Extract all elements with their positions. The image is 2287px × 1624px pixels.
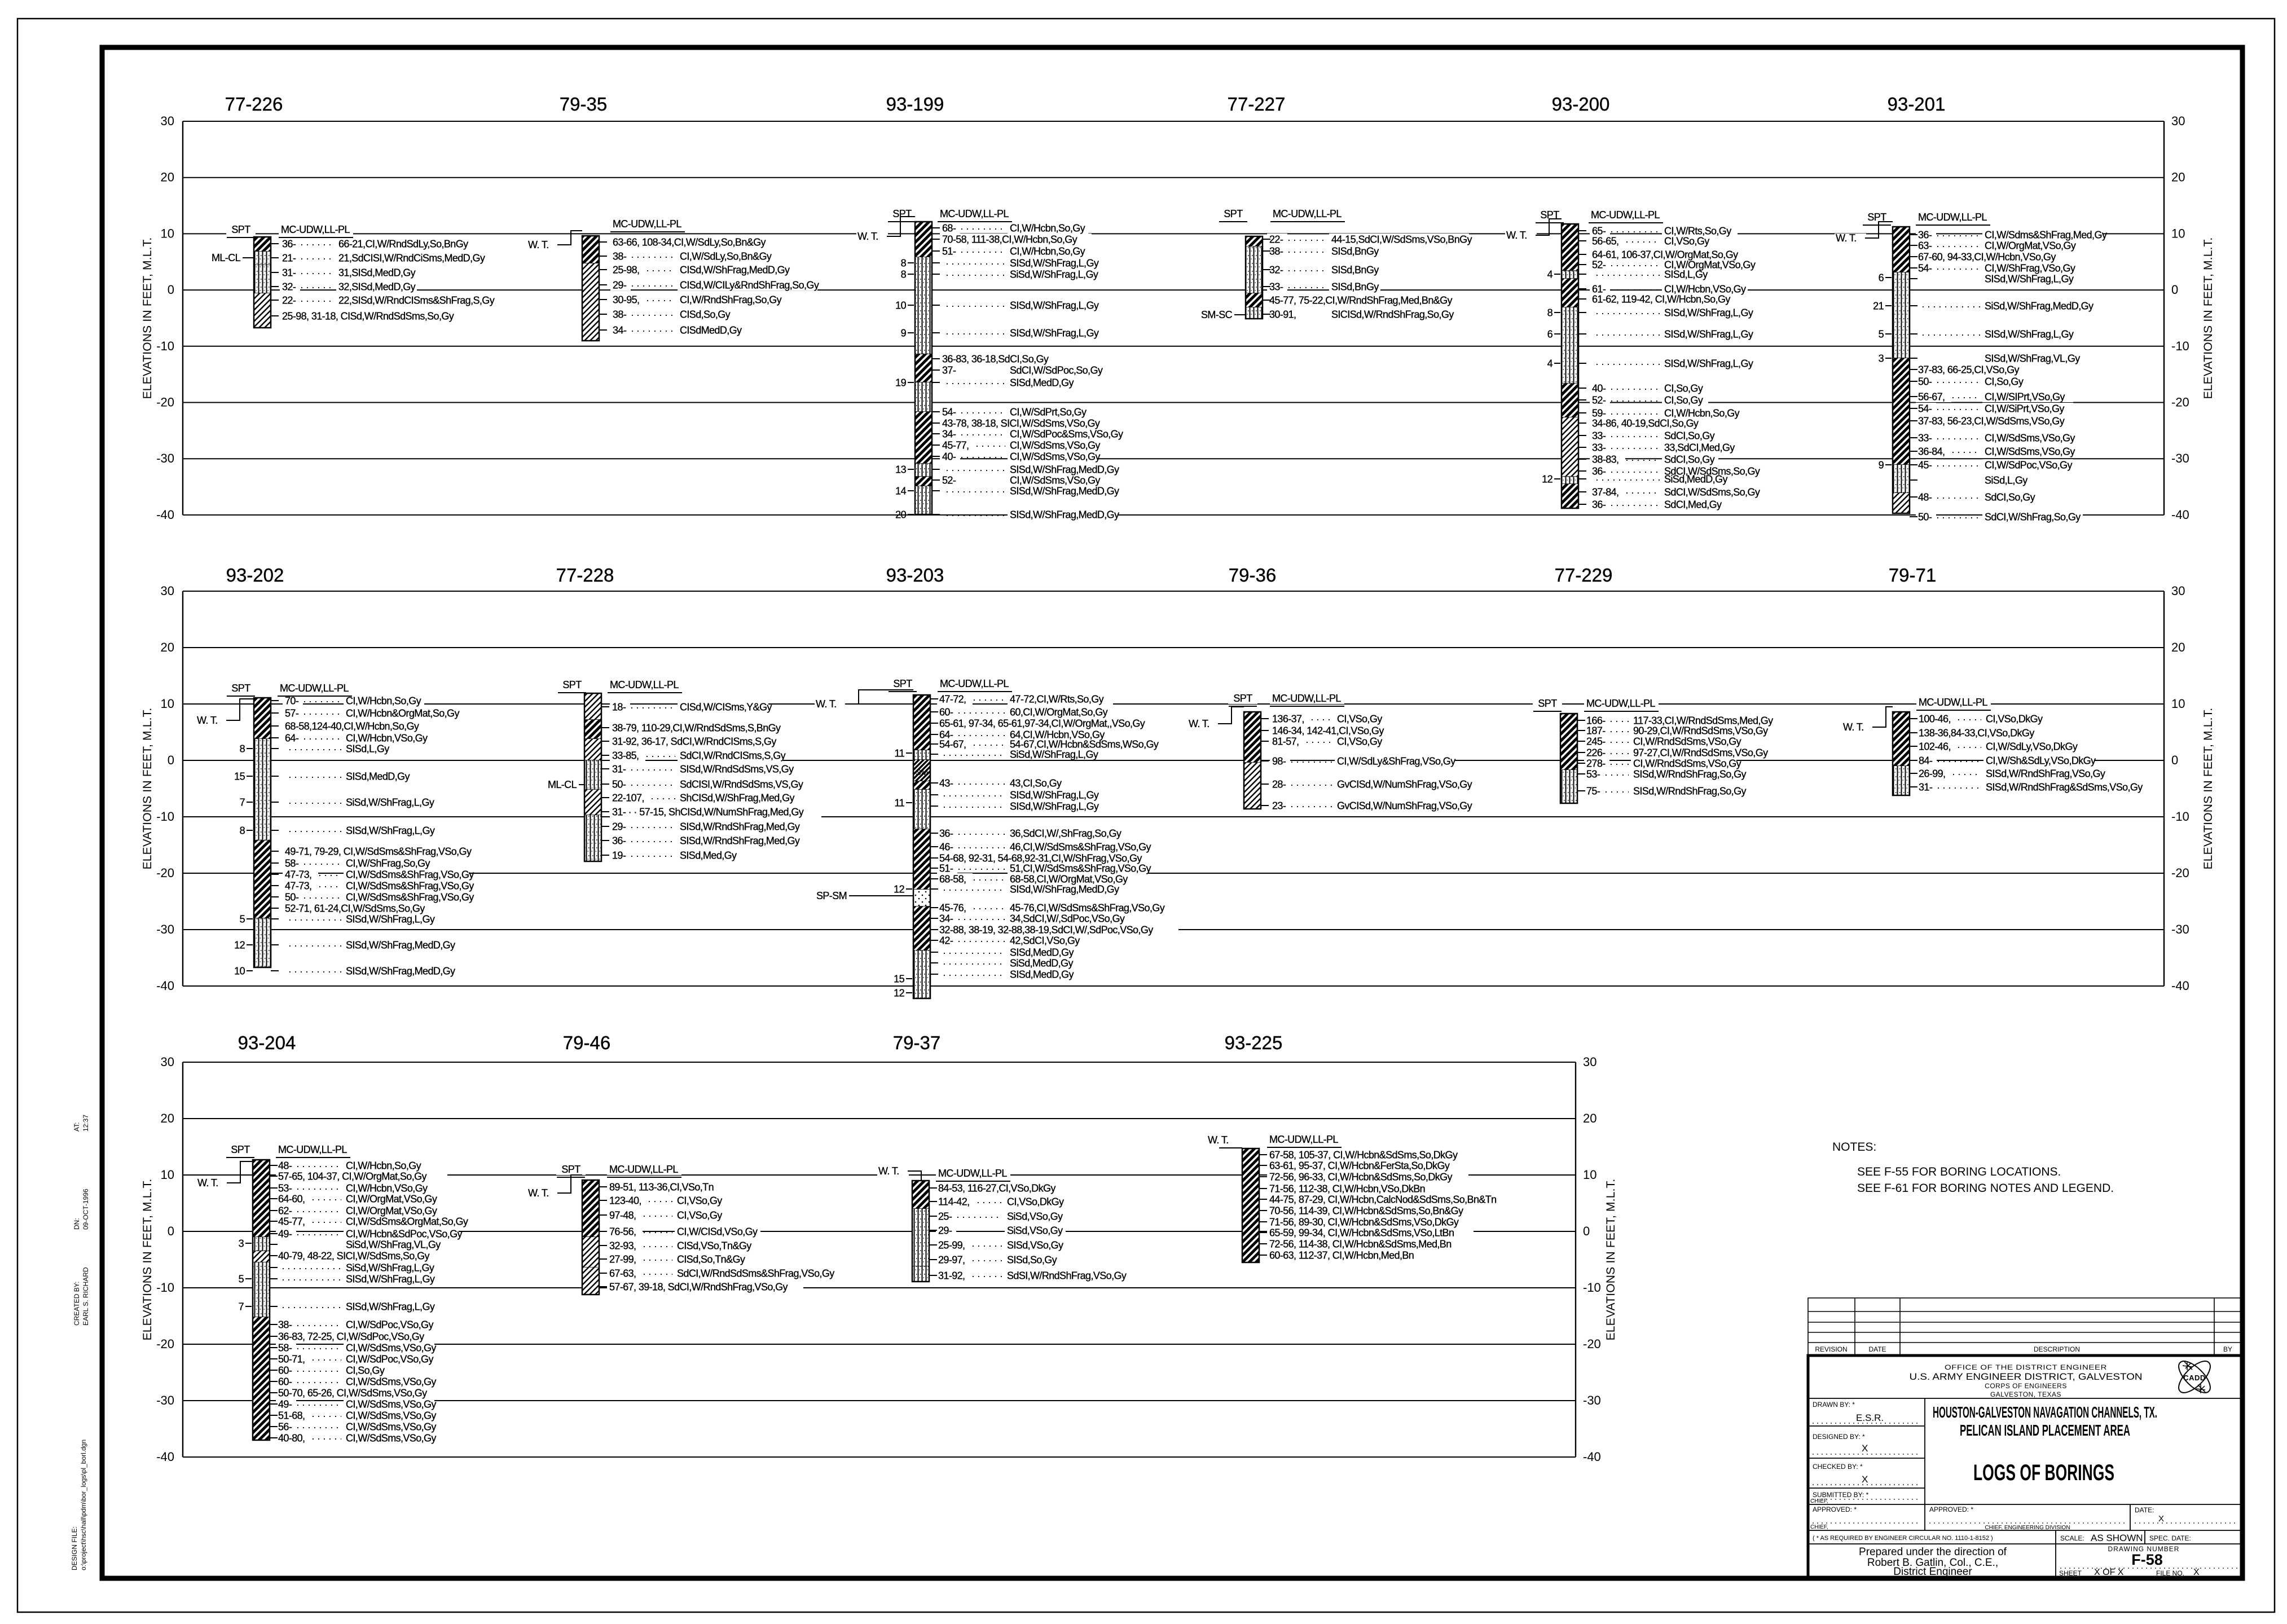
svg-text:20: 20 [161, 1111, 174, 1125]
svg-text:8: 8 [1547, 307, 1553, 319]
svg-text:CORPS OF ENGINEERS: CORPS OF ENGINEERS [1985, 1382, 2067, 1390]
svg-text:146-34, 142-41,CI,VSo,Gy: 146-34, 142-41,CI,VSo,Gy [1272, 725, 1384, 737]
svg-text:W. T.: W. T. [1506, 230, 1527, 241]
svg-text:CI,W/SdSms,VSo,Gy: CI,W/SdSms,VSo,Gy [346, 1433, 436, 1444]
svg-text:SUBMITTED BY: *: SUBMITTED BY: * [1813, 1491, 1869, 1499]
svg-text:61-62, 119-42, CI,W/Hcbn,So,Gy: 61-62, 119-42, CI,W/Hcbn,So,Gy [1592, 294, 1730, 305]
svg-text:SdCISI,W/RndSdSms,VS,Gy: SdCISI,W/RndSdSms,VS,Gy [680, 779, 803, 790]
svg-text:CI,W/SdSms&ShFrag,VSo,Gy: CI,W/SdSms&ShFrag,VSo,Gy [346, 892, 474, 903]
svg-text:43-78, 38-18, SICI,W/SdSms,VS: 43-78, 38-18, SICI,W/SdSms,VSo,Gy [942, 418, 1100, 429]
svg-text:57-67, 39-18, SdCI,W/RndShFra: 57-67, 39-18, SdCI,W/RndShFrag,VSo,Gy [609, 1282, 788, 1293]
svg-text:3: 3 [239, 1238, 244, 1249]
svg-text:FILE NO.: FILE NO. [2156, 1569, 2184, 1577]
svg-text:SPT: SPT [561, 1164, 580, 1175]
svg-text:64-60,: 64-60, [278, 1194, 305, 1205]
svg-text:75-: 75- [1586, 786, 1600, 797]
svg-text:5: 5 [240, 914, 245, 925]
svg-text:34-: 34- [939, 913, 953, 925]
svg-text:50-70, 65-26, CI,W/SdSms,VSo: 50-70, 65-26, CI,W/SdSms,VSo,Gy [278, 1388, 427, 1399]
svg-text:SiSd,MedD,Gy: SiSd,MedD,Gy [1664, 474, 1727, 485]
svg-text:CI,W/ShFrag,VSo,Gy: CI,W/ShFrag,VSo,Gy [1985, 263, 2075, 274]
svg-text:DESIGN FILE:: DESIGN FILE: [71, 1526, 78, 1570]
svg-text:GALVESTON, TEXAS: GALVESTON, TEXAS [1990, 1390, 2061, 1398]
svg-text:36-: 36- [1592, 466, 1606, 477]
svg-text:5: 5 [1879, 329, 1884, 340]
svg-text:W. T.: W. T. [878, 1165, 899, 1177]
svg-text:46-: 46- [939, 842, 953, 853]
svg-text:25-98, 31-18, CISd,W/RndSdSm: 25-98, 31-18, CISd,W/RndSdSms,So,Gy [282, 311, 454, 322]
svg-text:SISd,W/ShFrag,L,Gy: SISd,W/ShFrag,L,Gy [1010, 258, 1099, 269]
svg-text:36-84,: 36-84, [1918, 446, 1945, 457]
svg-text:10: 10 [2171, 226, 2185, 240]
svg-text:18-: 18- [612, 702, 626, 713]
svg-text:30: 30 [161, 114, 174, 128]
svg-text:CI,W/SdPrt,So,Gy: CI,W/SdPrt,So,Gy [1010, 407, 1087, 418]
svg-text:138-36,84-33,CI,VSo,DkGy: 138-36,84-33,CI,VSo,DkGy [1919, 728, 2034, 739]
svg-text:MC-UDW,LL-PL: MC-UDW,LL-PL [1586, 698, 1655, 709]
svg-text:SISd,W/ShFrag,L,Gy: SISd,W/ShFrag,L,Gy [346, 1274, 435, 1285]
svg-text:CI,W/OrgMat,VSo,Gy: CI,W/OrgMat,VSo,Gy [346, 1205, 437, 1217]
svg-text:CI,W/SdSms,VSo,Gy: CI,W/SdSms,VSo,Gy [346, 1376, 436, 1388]
svg-text:45-77,: 45-77, [942, 440, 969, 451]
svg-text:CI,W/OrgMat,VSo,Gy: CI,W/OrgMat,VSo,Gy [1985, 240, 2076, 252]
svg-text:GvCISd,W/NumShFrag,VSo,Gy: GvCISd,W/NumShFrag,VSo,Gy [1337, 779, 1472, 790]
svg-text:13: 13 [895, 464, 906, 476]
svg-text:CHECKED BY: *: CHECKED BY: * [1813, 1463, 1863, 1471]
svg-text:-40: -40 [2171, 508, 2189, 522]
svg-text:W. T.: W. T. [197, 715, 218, 726]
svg-text:DESIGNED BY: *: DESIGNED BY: * [1813, 1433, 1865, 1441]
svg-text:36-: 36- [1592, 499, 1606, 510]
svg-text:64-61, 106-37,CI,W/OrgMat,So,G: 64-61, 106-37,CI,W/OrgMat,So,Gy [1592, 249, 1738, 261]
svg-text:49-: 49- [278, 1229, 292, 1240]
svg-text:8: 8 [240, 825, 245, 837]
svg-text:34-: 34- [613, 325, 627, 336]
svg-text:SiSd,W/ShFrag,L,Gy: SiSd,W/ShFrag,L,Gy [346, 1262, 434, 1274]
svg-text:38-: 38- [613, 309, 627, 320]
svg-text:SPEC. DATE:: SPEC. DATE: [2149, 1534, 2191, 1542]
svg-text:CI,W/Hcbn,So,Gy: CI,W/Hcbn,So,Gy [1664, 408, 1740, 419]
svg-text:0: 0 [168, 283, 174, 297]
svg-text:31-: 31- [612, 764, 626, 775]
svg-text:X OF X: X OF X [2094, 1568, 2124, 1577]
svg-text:ELEVATIONS IN FEET, M.L.T.: ELEVATIONS IN FEET, M.L.T. [1604, 1179, 1617, 1341]
svg-text:3: 3 [1879, 353, 1884, 364]
svg-text:44-15,SdCI,W/SdSms,VSo,BnGy: 44-15,SdCI,W/SdSms,VSo,BnGy [1331, 234, 1472, 245]
svg-text:8: 8 [901, 269, 907, 280]
svg-text:38-79, 110-29,CI,W/RndSdSms,S: 38-79, 110-29,CI,W/RndSdSms,S,BnGy [612, 723, 781, 734]
svg-text:49-: 49- [278, 1399, 292, 1410]
svg-text:50-: 50- [285, 892, 299, 903]
svg-text:45-76,: 45-76, [939, 903, 966, 914]
svg-text:ELEVATIONS IN FEET, M.L.T.: ELEVATIONS IN FEET, M.L.T. [2202, 708, 2215, 870]
svg-text:36-83, 72-25, CI,W/SdPoc,VSo: 36-83, 72-25, CI,W/SdPoc,VSo,Gy [278, 1331, 424, 1343]
svg-text:CI,W/Hcbn&SdPoc,VSo,Gy: CI,W/Hcbn&SdPoc,VSo,Gy [346, 1229, 462, 1240]
svg-text:79-37: 79-37 [893, 1032, 940, 1053]
svg-text:84-: 84- [1919, 755, 1933, 767]
svg-text:97-48,: 97-48, [609, 1210, 636, 1221]
svg-text:32-88, 38-19, 32-88,38-19,SdC: 32-88, 38-19, 32-88,38-19,SdCI,W/,SdPoc,… [939, 925, 1153, 936]
svg-text:33-85,: 33-85, [612, 750, 639, 762]
svg-text:MC-UDW,LL-PL: MC-UDW,LL-PL [613, 218, 681, 230]
svg-text:CREATED BY:: CREATED BY: [73, 1282, 81, 1326]
svg-text:GvCISd,W/NumShFrag,VSo,Gy: GvCISd,W/NumShFrag,VSo,Gy [1337, 800, 1472, 812]
svg-text:-40: -40 [156, 979, 174, 993]
svg-text:CI,So,Gy: CI,So,Gy [1664, 395, 1703, 406]
svg-text:52-: 52- [1592, 395, 1606, 406]
svg-text:36-: 36- [1918, 230, 1932, 241]
svg-text:SISd,So,Gy: SISd,So,Gy [1007, 1255, 1057, 1266]
svg-text:93-202: 93-202 [226, 565, 284, 586]
svg-text:W. T.: W. T. [1189, 718, 1210, 729]
svg-text:20: 20 [895, 509, 906, 521]
svg-text:32-: 32- [1269, 265, 1283, 276]
svg-text:REVISION: REVISION [1815, 1345, 1847, 1353]
svg-text:77-229: 77-229 [1555, 565, 1613, 586]
svg-text:SISd,W/ShFrag,MedD,Gy: SISd,W/ShFrag,MedD,Gy [1010, 486, 1119, 497]
svg-text:SdCI,So,Gy: SdCI,So,Gy [1664, 430, 1715, 442]
svg-text:SISd,L,Gy: SISd,L,Gy [1664, 269, 1708, 280]
svg-text:ELEVATIONS IN FEET, M.L.T.: ELEVATIONS IN FEET, M.L.T. [141, 708, 154, 870]
svg-text:CI,W/SdLy,So,Bn&Gy: CI,W/SdLy,So,Bn&Gy [680, 251, 772, 262]
svg-text:-10: -10 [1583, 1280, 1601, 1295]
svg-text:54-: 54- [1918, 263, 1932, 274]
svg-text:CISd,So,Gy: CISd,So,Gy [680, 309, 731, 320]
svg-text:CI,W/Hcbn,So,Gy: CI,W/Hcbn,So,Gy [346, 1160, 421, 1172]
svg-text:30: 30 [2171, 584, 2185, 598]
svg-text:60-: 60- [278, 1365, 292, 1376]
svg-text:67-58, 105-37, CI,W/Hcbn&SdSm: 67-58, 105-37, CI,W/Hcbn&SdSms,So,DkGy [1269, 1150, 1458, 1161]
svg-text:SISd,W/ShFrag,VL,Gy: SISd,W/ShFrag,VL,Gy [1985, 353, 2080, 364]
svg-text:CI,W/SdSms,VSo,Gy: CI,W/SdSms,VSo,Gy [1010, 451, 1100, 463]
svg-text:CI,W/SiPrt,VSo,Gy: CI,W/SiPrt,VSo,Gy [1985, 403, 2064, 415]
svg-text:187-: 187- [1586, 725, 1606, 737]
svg-text:CI,VSo,Gy: CI,VSo,Gy [1337, 714, 1382, 725]
svg-text:30: 30 [1583, 1055, 1596, 1069]
svg-text:SISd,W/ShFrag,L,Gy: SISd,W/ShFrag,L,Gy [1010, 790, 1099, 801]
svg-text:MC-UDW,LL-PL: MC-UDW,LL-PL [940, 678, 1009, 689]
svg-text:CI,VSo,DkGy: CI,VSo,DkGy [1986, 714, 2043, 725]
svg-text:70-: 70- [285, 696, 299, 707]
svg-text:CI,W/SdPoc,VSo,Gy: CI,W/SdPoc,VSo,Gy [346, 1319, 433, 1331]
svg-text:30: 30 [2171, 114, 2185, 128]
svg-text:37-83, 66-25,CI,VSo,Gy: 37-83, 66-25,CI,VSo,Gy [1918, 364, 2020, 376]
svg-text:CI,So,Gy: CI,So,Gy [1664, 383, 1703, 394]
svg-text:CI,W/OrgMat,VSo,Gy: CI,W/OrgMat,VSo,Gy [346, 1194, 437, 1205]
svg-text:-10: -10 [2171, 809, 2189, 824]
svg-text:SiSd,W/ShFrag,L,Gy: SiSd,W/ShFrag,L,Gy [1010, 269, 1098, 280]
svg-text:19: 19 [895, 377, 906, 389]
svg-text:30: 30 [161, 1055, 174, 1069]
svg-text:10: 10 [1583, 1168, 1596, 1182]
svg-text:SM: SM [916, 768, 929, 777]
svg-text:DESCRIPTION: DESCRIPTION [2034, 1345, 2080, 1353]
svg-text:25-98,: 25-98, [613, 265, 639, 276]
svg-text:MC-UDW,LL-PL: MC-UDW,LL-PL [610, 679, 679, 690]
svg-text:CI,W/SdSms,VSo,Gy: CI,W/SdSms,VSo,Gy [1985, 446, 2075, 457]
svg-text:57-: 57- [285, 708, 299, 719]
svg-text:166-: 166- [1586, 715, 1606, 727]
svg-text:0: 0 [2171, 283, 2178, 297]
svg-text:56-: 56- [278, 1421, 292, 1433]
svg-text:30-95,: 30-95, [613, 294, 639, 306]
svg-text:30-91,: 30-91, [1269, 309, 1296, 320]
svg-text:CI,W/SdLy&ShFrag,VSo,Gy: CI,W/SdLy&ShFrag,VSo,Gy [1337, 756, 1455, 767]
svg-text:EARL S. RICHARD: EARL S. RICHARD [82, 1267, 90, 1326]
svg-text:22-107,: 22-107, [612, 793, 644, 804]
svg-text:79-46: 79-46 [563, 1032, 610, 1053]
svg-text:36-: 36- [282, 239, 296, 250]
svg-text:CI,W/SdSms,VSo,Gy: CI,W/SdSms,VSo,Gy [346, 1399, 436, 1410]
svg-text:CISdMedD,Gy: CISdMedD,Gy [680, 325, 742, 336]
svg-text:77-226: 77-226 [225, 94, 283, 115]
svg-text:51-68,: 51-68, [278, 1410, 305, 1421]
svg-text:CI,W/SdSms&ShFrag,VSo,Gy: CI,W/SdSms&ShFrag,VSo,Gy [346, 881, 474, 892]
svg-text:SPT: SPT [562, 679, 582, 690]
svg-text:SiSd,W/ShFrag,L,Gy: SiSd,W/ShFrag,L,Gy [346, 797, 434, 808]
svg-text:SISd,W/ShFrag,L,Gy: SISd,W/ShFrag,L,Gy [1985, 329, 2074, 340]
svg-text:20: 20 [161, 640, 174, 654]
svg-text:CISd,VSo,Tn&Gy: CISd,VSo,Tn&Gy [677, 1240, 751, 1252]
svg-text:CI,W/SdLy,VSo,DkGy: CI,W/SdLy,VSo,DkGy [1986, 741, 2078, 752]
svg-text:CHIEF,: CHIEF, [1810, 1524, 1828, 1530]
svg-text:SISd,Med,Gy: SISd,Med,Gy [680, 850, 737, 861]
svg-text:MC-UDW,LL-PL: MC-UDW,LL-PL [1269, 1134, 1338, 1145]
svg-text:CI,W/SdPoc&Sms,VSo,Gy: CI,W/SdPoc&Sms,VSo,Gy [1010, 429, 1123, 440]
svg-text:34-86, 40-19,SdCI,So,Gy: 34-86, 40-19,SdCI,So,Gy [1592, 418, 1699, 429]
svg-text:-40: -40 [156, 508, 174, 522]
svg-text:-30: -30 [2171, 922, 2189, 936]
svg-text:21,SdCISI,W/RndCiSms,MedD,Gy: 21,SdCISI,W/RndCiSms,MedD,Gy [338, 253, 485, 264]
svg-text:PELICAN ISLAND PLACEMENT AR: PELICAN ISLAND PLACEMENT AREA [1960, 1421, 2130, 1439]
svg-text:38-: 38- [278, 1319, 292, 1331]
svg-text:W. T.: W. T. [528, 1187, 549, 1199]
svg-text:26-99,: 26-99, [1919, 768, 1945, 780]
svg-text:89-51, 113-36,CI,VSo,Tn: 89-51, 113-36,CI,VSo,Tn [609, 1182, 714, 1193]
svg-text:APPROVED: *: APPROVED: * [1929, 1506, 1973, 1513]
svg-text:-30: -30 [156, 1393, 174, 1407]
svg-text:68-58,CI,W/OrgMat,VSo,Gy: 68-58,CI,W/OrgMat,VSo,Gy [1010, 874, 1128, 885]
svg-text:CI,W/SdSms,VSo,Gy: CI,W/SdSms,VSo,Gy [346, 1410, 436, 1421]
svg-text:29-: 29- [938, 1225, 952, 1236]
svg-text:SISd,MedD,Gy: SISd,MedD,Gy [1010, 969, 1074, 980]
svg-text:53-: 53- [278, 1183, 292, 1194]
svg-text:W. T.: W. T. [528, 239, 549, 250]
svg-text:SISd,BnGy: SISd,BnGy [1331, 281, 1379, 293]
svg-text:CISd,W/ShFrag,MedD,Gy: CISd,W/ShFrag,MedD,Gy [680, 265, 790, 276]
svg-text:ShCISd,W/ShFrag,Med,Gy: ShCISd,W/ShFrag,Med,Gy [680, 793, 794, 804]
svg-text:SISd,BnGy: SISd,BnGy [1331, 246, 1379, 257]
svg-text:ELEVATIONS IN FEET, M.L.T.: ELEVATIONS IN FEET, M.L.T. [141, 237, 154, 399]
svg-text:278-: 278- [1586, 758, 1606, 769]
svg-text:-20: -20 [156, 1337, 174, 1351]
svg-text:-30: -30 [156, 922, 174, 936]
svg-text:SISd,MedD,Gy: SISd,MedD,Gy [1010, 947, 1074, 958]
svg-text:W. T.: W. T. [1208, 1134, 1229, 1146]
svg-text:CHIEF, ENGINEERING DIVISION: CHIEF, ENGINEERING DIVISION [1985, 1525, 2070, 1531]
svg-text:SISd,MedD,Gy: SISd,MedD,Gy [1010, 377, 1074, 389]
svg-text:31-: 31- [282, 267, 296, 279]
svg-text:SISd,MedD,Gy: SISd,MedD,Gy [346, 771, 410, 782]
svg-text:-40: -40 [1583, 1450, 1601, 1464]
svg-text:48-: 48- [1918, 492, 1932, 503]
svg-text:79-36: 79-36 [1229, 565, 1276, 586]
svg-text:34-: 34- [942, 429, 956, 440]
svg-text:W. T.: W. T. [816, 698, 837, 710]
svg-text:APPROVED: *: APPROVED: * [1813, 1506, 1857, 1513]
svg-text:123-40,: 123-40, [609, 1195, 641, 1207]
svg-text:93-199: 93-199 [886, 94, 944, 115]
svg-text:67-63,: 67-63, [609, 1268, 636, 1279]
svg-text:SPT: SPT [231, 683, 250, 694]
svg-text:77-227: 77-227 [1228, 94, 1286, 115]
svg-text:CI,W/ShFrag,So,Gy: CI,W/ShFrag,So,Gy [346, 858, 430, 869]
svg-text:SISd,W/ShFrag,MedD,Gy: SISd,W/ShFrag,MedD,Gy [1010, 464, 1119, 476]
svg-text:10: 10 [2171, 697, 2185, 711]
svg-text:51-: 51- [939, 863, 953, 874]
svg-text:MC-UDW,LL-PL: MC-UDW,LL-PL [1591, 209, 1660, 221]
svg-text:0: 0 [168, 1224, 174, 1238]
svg-text:SISd,W/ShFrag,L,Gy: SISd,W/ShFrag,L,Gy [346, 914, 435, 925]
svg-text:DN:: DN: [73, 1218, 81, 1230]
svg-text:6: 6 [1879, 272, 1884, 284]
svg-text:31,SISd,MedD,Gy: 31,SISd,MedD,Gy [338, 267, 416, 279]
svg-text:AT:: AT: [73, 1123, 81, 1132]
svg-text:12: 12 [894, 988, 904, 999]
svg-text:CI,W/RndShFrag,So,Gy: CI,W/RndShFrag,So,Gy [680, 294, 782, 306]
svg-text:29-97,: 29-97, [938, 1255, 965, 1266]
svg-text:CI,W/SdSms,VSo,Gy: CI,W/SdSms,VSo,Gy [1985, 433, 2075, 444]
svg-text:CI,W/SdPoc,VSo,Gy: CI,W/SdPoc,VSo,Gy [1985, 460, 2072, 471]
svg-text:20: 20 [2171, 640, 2185, 654]
svg-text:32-: 32- [282, 281, 296, 293]
svg-text:SISd,W/ShFrag,L,Gy: SISd,W/ShFrag,L,Gy [1664, 307, 1753, 319]
svg-text:CI,W/CISd,VSo,Gy: CI,W/CISd,VSo,Gy [677, 1226, 758, 1238]
svg-text:CI,W/Hcbn,So,Gy: CI,W/Hcbn,So,Gy [346, 696, 421, 707]
svg-text:Prepared under the direction o: Prepared under the direction of [1859, 1546, 2007, 1558]
svg-text:10: 10 [234, 966, 245, 977]
svg-text:54-67,CI,W/Hcbn&SdSms,WSo,Gy: 54-67,CI,W/Hcbn&SdSms,WSo,Gy [1010, 739, 1159, 750]
svg-text:25-99,: 25-99, [938, 1240, 965, 1251]
svg-text:48-: 48- [278, 1160, 292, 1172]
svg-text:CI,W/Hcbn&OrgMat,So,Gy: CI,W/Hcbn&OrgMat,So,Gy [346, 708, 459, 719]
svg-text:SISd,W/RndShFrag,Med,Gy: SISd,W/RndShFrag,Med,Gy [680, 821, 800, 833]
svg-text:81-57,: 81-57, [1272, 736, 1299, 747]
svg-text:79-35: 79-35 [560, 94, 607, 115]
svg-text:ELEVATIONS IN FEET, M.L.T.: ELEVATIONS IN FEET, M.L.T. [141, 1179, 154, 1341]
svg-text:-40: -40 [156, 1450, 174, 1464]
svg-text:CADD: CADD [2183, 1374, 2206, 1382]
svg-text:-10: -10 [2171, 339, 2189, 353]
svg-text:MC-UDW,LL-PL: MC-UDW,LL-PL [938, 1168, 1007, 1179]
svg-text:58-: 58- [278, 1343, 292, 1354]
svg-text:SISd,W/RndShFrag,VSo,Gy: SISd,W/RndShFrag,VSo,Gy [1986, 768, 2105, 780]
svg-text:37-84,: 37-84, [1592, 487, 1619, 498]
svg-text:SISd,W/RndSdSms,VS,Gy: SISd,W/RndSdSms,VS,Gy [680, 764, 794, 775]
svg-text:245-: 245- [1586, 736, 1606, 747]
svg-text:66-21,CI,W/RndSdLy,So,BnGy: 66-21,CI,W/RndSdLy,So,BnGy [338, 239, 468, 250]
svg-text:DATE:: DATE: [2135, 1506, 2154, 1514]
svg-text:45-77,: 45-77, [278, 1216, 305, 1227]
svg-text:65-61, 97-34, 65-61,97-34,CI,: 65-61, 97-34, 65-61,97-34,CI,W/OrgMat,,V… [939, 718, 1145, 729]
svg-text:BY: BY [2223, 1345, 2232, 1353]
svg-text:30: 30 [161, 584, 174, 598]
svg-text:65-: 65- [1592, 226, 1606, 237]
svg-text:54-: 54- [942, 407, 956, 418]
svg-text:-30: -30 [2171, 451, 2189, 465]
svg-text:SiSd,W/ShFrag,MedD,Gy: SiSd,W/ShFrag,MedD,Gy [1985, 301, 2094, 312]
svg-text:MC-UDW,LL-PL: MC-UDW,LL-PL [280, 683, 349, 694]
svg-text:29-: 29- [612, 821, 626, 833]
svg-text:SiSd,W/ShFrag,VL,Gy: SiSd,W/ShFrag,VL,Gy [346, 1239, 441, 1251]
svg-text:36,SdCI,W/,ShFrag,So,Gy: 36,SdCI,W/,ShFrag,So,Gy [1010, 828, 1121, 839]
svg-text:57-65, 104-37, CI,W/OrgMat,So: 57-65, 104-37, CI,W/OrgMat,So,Gy [278, 1171, 427, 1182]
svg-text:12: 12 [1542, 474, 1552, 485]
svg-text:CISd,W/CILy&RndShFrag,So,Gy: CISd,W/CILy&RndShFrag,So,Gy [680, 280, 819, 291]
svg-text:SdCI,So,Gy: SdCI,So,Gy [1985, 492, 2035, 503]
svg-text:CI,W/Hcbn,VSo,Gy: CI,W/Hcbn,VSo,Gy [346, 1183, 428, 1194]
svg-text:SdCI,Med,Gy: SdCI,Med,Gy [1664, 499, 1722, 510]
svg-text:12:37: 12:37 [82, 1115, 90, 1132]
svg-text:42-: 42- [939, 935, 953, 947]
svg-text:SPT: SPT [893, 678, 912, 689]
svg-text:19-: 19- [612, 850, 626, 861]
svg-text:-20: -20 [1583, 1337, 1601, 1351]
svg-text:50-: 50- [1918, 512, 1932, 523]
svg-text:226-: 226- [1586, 747, 1606, 759]
svg-text:63-: 63- [1918, 240, 1932, 252]
svg-text:CI,W/SdPoc,VSo,Gy: CI,W/SdPoc,VSo,Gy [346, 1354, 433, 1365]
svg-text:SISd,W/ShFrag,L,Gy: SISd,W/ShFrag,L,Gy [1985, 274, 2074, 285]
svg-text:CISd,So,Tn&Gy: CISd,So,Tn&Gy [677, 1254, 745, 1265]
svg-text:38-: 38- [613, 251, 627, 262]
svg-text:40-80,: 40-80, [278, 1433, 305, 1444]
svg-text:29-: 29- [613, 280, 627, 291]
svg-text:0: 0 [1583, 1224, 1590, 1238]
svg-text:CI,W/RndSdSms,VSo,Gy: CI,W/RndSdSms,VSo,Gy [1633, 758, 1741, 769]
svg-text:42,SdCI,VSo,Gy: 42,SdCI,VSo,Gy [1010, 935, 1080, 947]
svg-text:25-: 25- [938, 1211, 952, 1222]
svg-text:43,CI,So,Gy: 43,CI,So,Gy [1010, 778, 1062, 789]
svg-text:8: 8 [901, 258, 907, 269]
svg-text:CI,W/SdSms&ShFrag,VSo,Gy: CI,W/SdSms&ShFrag,VSo,Gy [346, 869, 474, 881]
svg-text:-20: -20 [156, 866, 174, 880]
svg-text:10: 10 [161, 226, 174, 240]
svg-text:SPT: SPT [231, 224, 250, 235]
svg-text:63-66, 108-34,CI,W/SdLy,So,Bn&: 63-66, 108-34,CI,W/SdLy,So,Bn&Gy [613, 237, 766, 248]
svg-text:F-58: F-58 [2131, 1551, 2163, 1568]
svg-text:52-71, 61-24,CI,W/SdSms,So,Gy: 52-71, 61-24,CI,W/SdSms,So,Gy [285, 903, 425, 914]
svg-text:SPT: SPT [892, 208, 912, 219]
svg-text:CI,VSo,Gy: CI,VSo,Gy [1337, 736, 1382, 747]
svg-text:X: X [1862, 1474, 1868, 1485]
svg-text:SISd,W/RndShFrag&SdSms,VSo,Gy: SISd,W/RndShFrag&SdSms,VSo,Gy [1986, 782, 2143, 793]
svg-text:93-204: 93-204 [238, 1032, 296, 1053]
svg-text:76-56,: 76-56, [609, 1226, 636, 1238]
svg-text:21: 21 [1873, 301, 1884, 312]
svg-text:SPT: SPT [1233, 693, 1252, 704]
svg-text:64-: 64- [285, 733, 299, 744]
svg-text:45-77, 75-22,CI,W/RndShFrag,M: 45-77, 75-22,CI,W/RndShFrag,Med,Bn&Gy [1269, 295, 1453, 306]
svg-text:SiSd,W/ShFrag,L,Gy: SiSd,W/ShFrag,L,Gy [1010, 749, 1098, 760]
svg-text:10: 10 [161, 697, 174, 711]
svg-text:32,SISd,MedD,Gy: 32,SISd,MedD,Gy [338, 281, 416, 293]
svg-text:70-56, 114-39, CI,W/Hcbn&SdSm: 70-56, 114-39, CI,W/Hcbn&SdSms,So,Bn&Gy [1269, 1205, 1463, 1217]
svg-text:77-228: 77-228 [556, 565, 614, 586]
svg-text:SISd,W/ShFrag,L,Gy: SISd,W/ShFrag,L,Gy [1664, 358, 1753, 369]
svg-text:ML-CL: ML-CL [548, 779, 577, 790]
svg-text:SdCI,W/RndSdSms&ShFrag,VSo,Gy: SdCI,W/RndSdSms&ShFrag,VSo,Gy [677, 1268, 834, 1279]
